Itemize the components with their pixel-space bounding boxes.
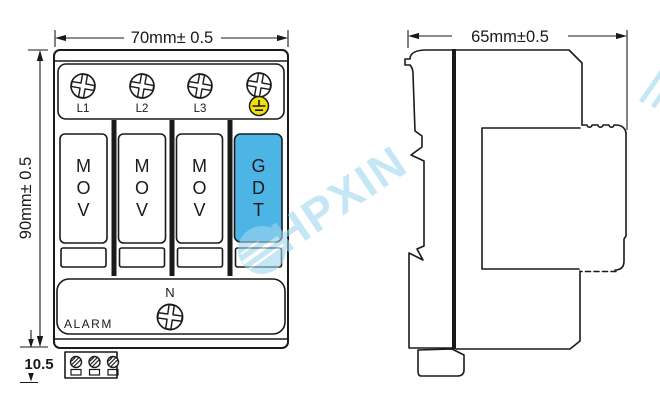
module-label: V — [136, 200, 148, 220]
module-window — [178, 248, 223, 267]
phillips-screw-icon — [156, 303, 184, 331]
mounting-plate-edge — [452, 49, 456, 349]
module-label: O — [76, 178, 90, 198]
module-label: V — [193, 200, 205, 220]
module-separator — [170, 120, 175, 276]
phillips-screw-icon — [128, 72, 156, 100]
module-label: T — [253, 200, 264, 220]
module-window — [61, 248, 106, 267]
module-separator — [112, 120, 117, 276]
module-label: O — [135, 178, 149, 198]
side-width-dimension-label: 65mm±0.5 — [471, 28, 549, 46]
module-mov-2: M O V — [119, 134, 166, 267]
module-label: O — [192, 178, 206, 198]
module-label: M — [192, 156, 207, 176]
module-label: D — [252, 178, 265, 198]
slotted-screw-icon — [108, 357, 119, 368]
bottom-terminal-block — [65, 352, 119, 378]
module-label: M — [135, 156, 150, 176]
din-rail-clip — [405, 50, 452, 348]
ground-terminal-icon — [250, 97, 269, 116]
module-label: M — [76, 156, 91, 176]
front-view: 70mm± 0.5 90mm± 0.5 10.5 — [17, 29, 288, 383]
side-view: 65mm±0.5 — [405, 28, 627, 376]
module-separator — [228, 120, 233, 276]
alarm-section: N ALARM — [57, 279, 285, 334]
module-mov-1: M O V — [60, 134, 107, 267]
front-width-dimension: 70mm± 0.5 — [55, 29, 288, 47]
terminal-label-l2: L2 — [136, 103, 149, 115]
slotted-screw-icon — [71, 357, 82, 368]
front-width-dimension-label: 70mm± 0.5 — [131, 29, 213, 47]
watermark-text: HPXIN — [263, 135, 417, 262]
module-window — [120, 248, 165, 267]
bottom-offset-dimension-label: 10.5 — [24, 356, 53, 373]
side-terminal-block — [418, 349, 464, 376]
technical-drawing-page: 70mm± 0.5 90mm± 0.5 10.5 — [0, 0, 660, 406]
front-height-dimension: 90mm± 0.5 — [17, 50, 48, 347]
slotted-screw-icon — [89, 357, 100, 368]
phillips-screw-icon — [186, 72, 214, 100]
module-label: V — [77, 200, 89, 220]
bottom-offset-dimension: 10.5 — [20, 330, 54, 383]
surge-protector-drawing: 70mm± 0.5 90mm± 0.5 10.5 — [0, 0, 660, 406]
terminal-strip: L1 L2 L3 — [58, 64, 284, 119]
terminal-label-l1: L1 — [77, 103, 90, 115]
phillips-screw-icon — [245, 71, 273, 99]
module-mov-3: M O V — [177, 134, 223, 267]
watermark-fragment — [641, 70, 660, 107]
phillips-screw-icon — [69, 72, 97, 100]
terminal-label-l3: L3 — [194, 103, 207, 115]
neutral-label: N — [165, 285, 174, 300]
alarm-label: ALARM — [64, 317, 113, 331]
module-label: G — [251, 156, 265, 176]
front-height-dimension-label: 90mm± 0.5 — [17, 157, 35, 239]
